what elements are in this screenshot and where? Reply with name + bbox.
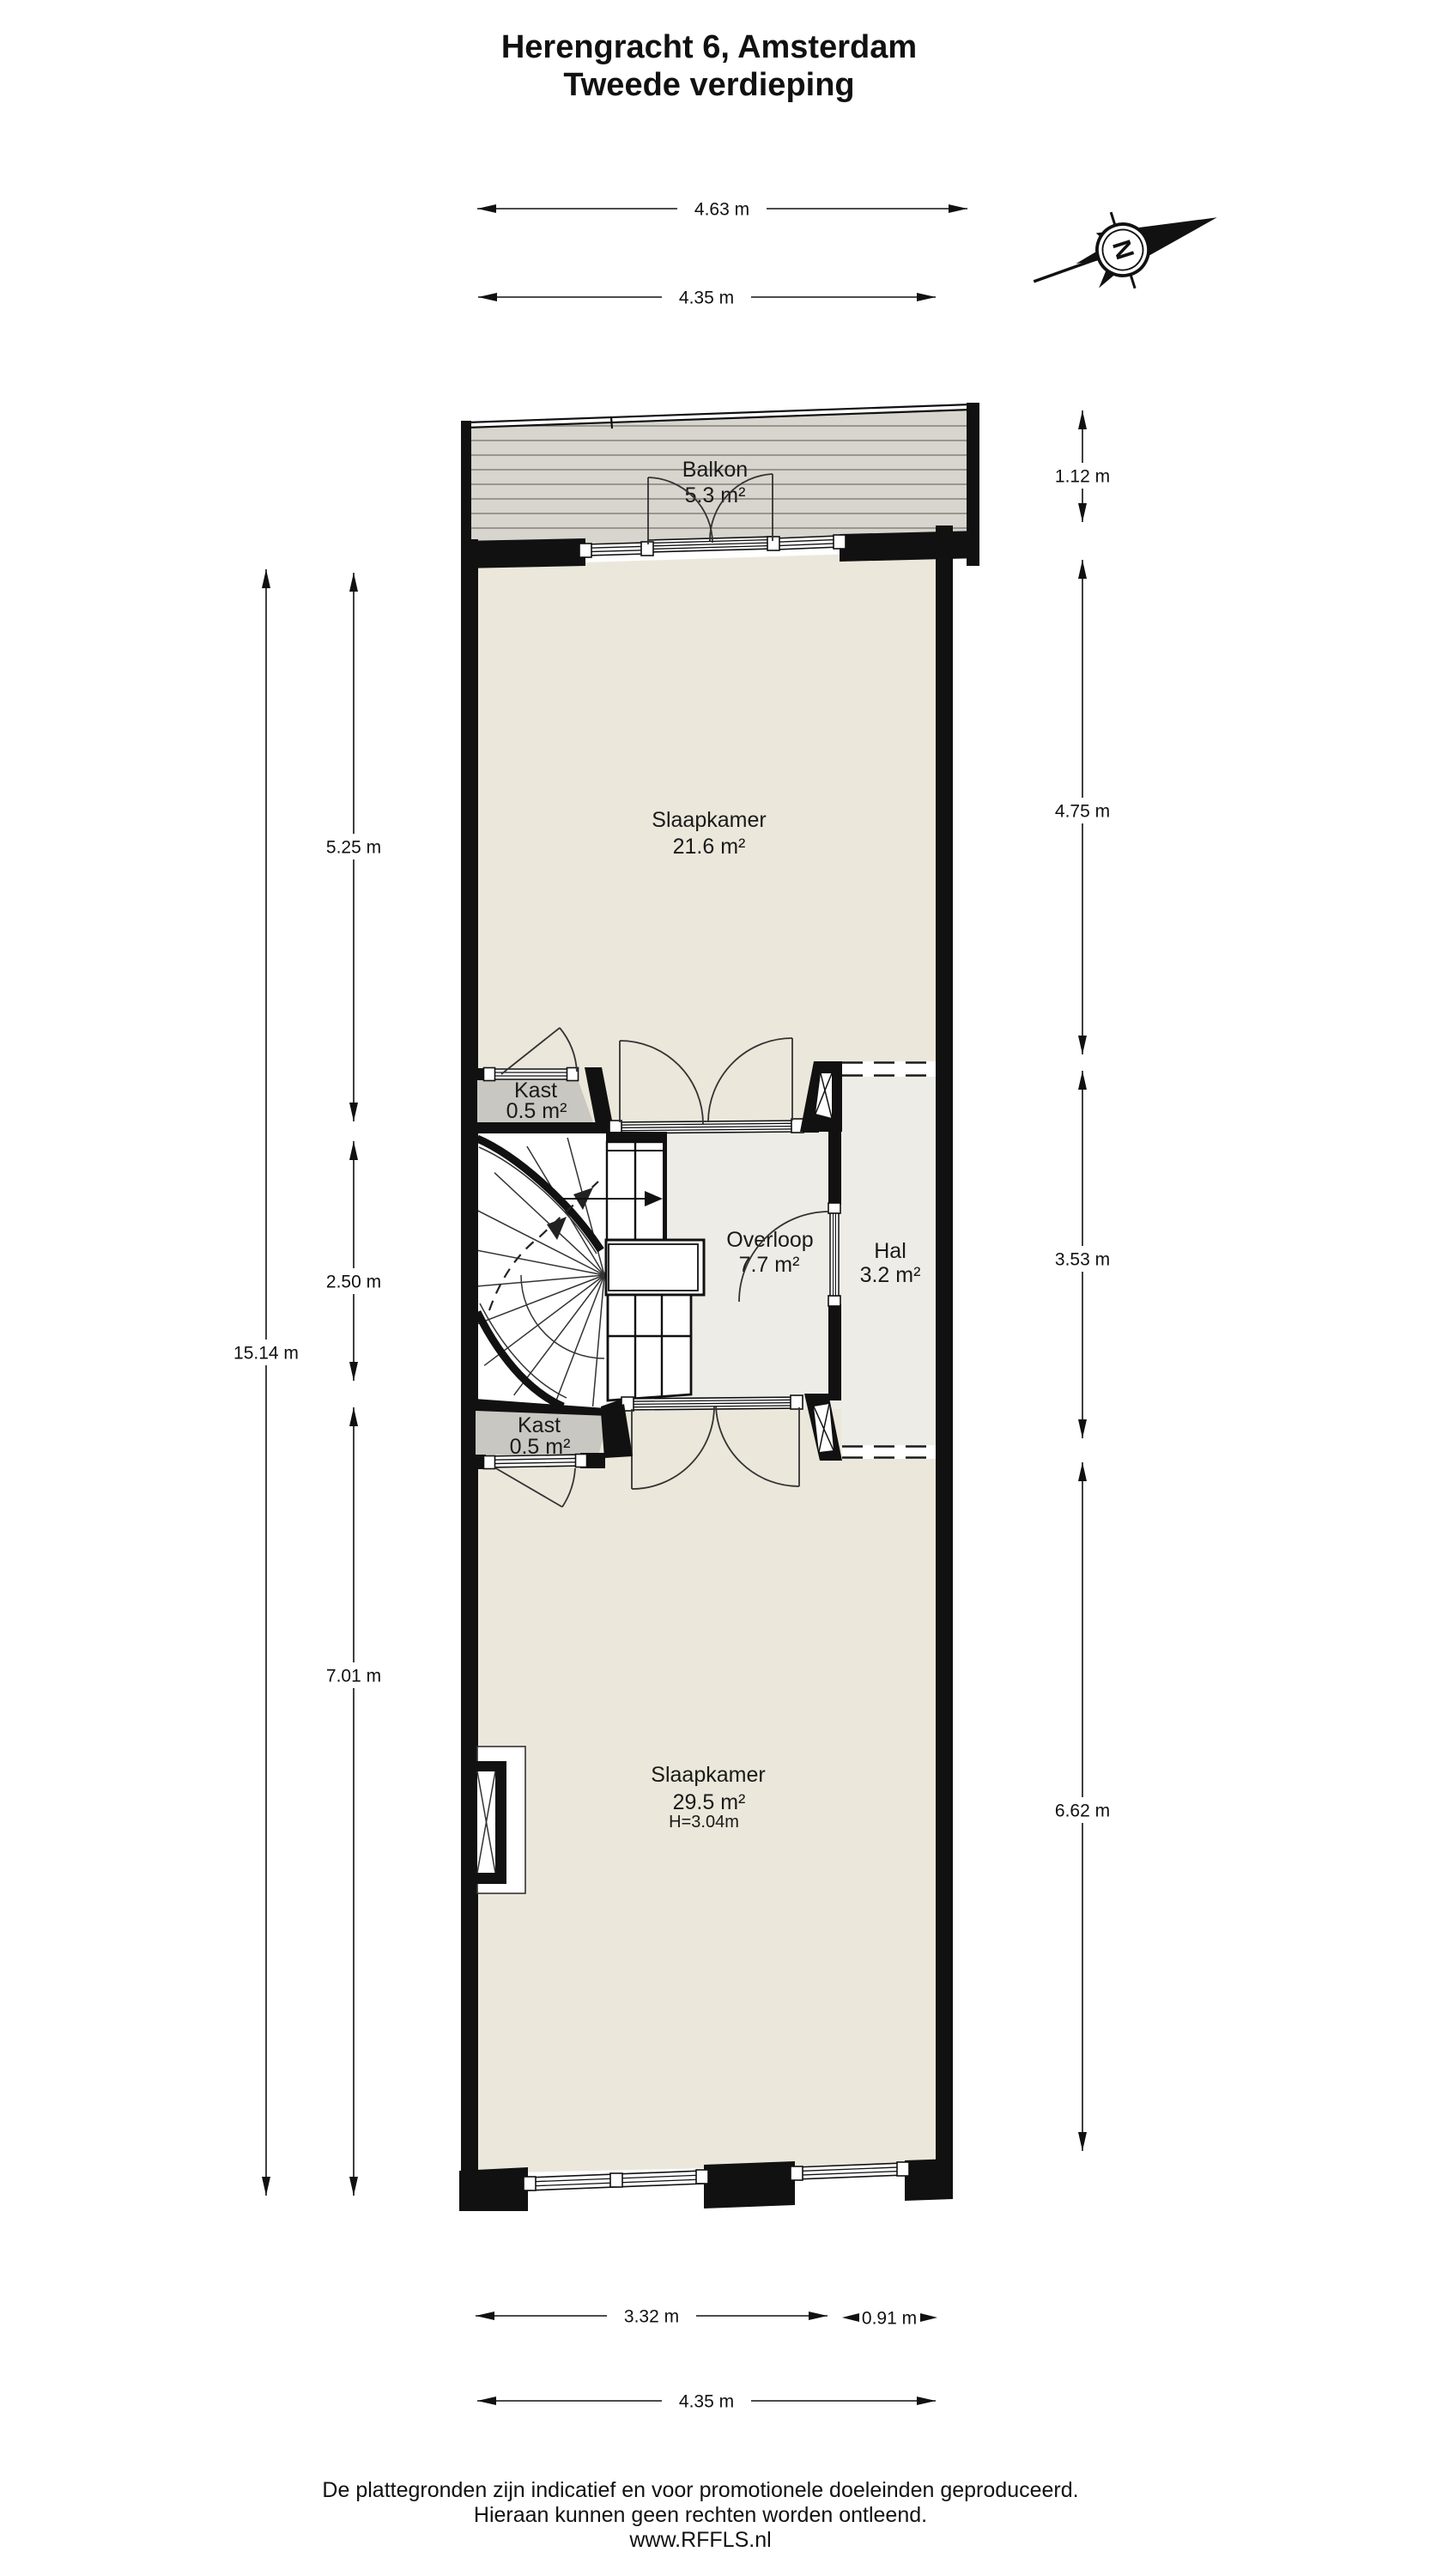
- svg-text:4.35 m: 4.35 m: [679, 289, 734, 308]
- svg-text:7.7 m²: 7.7 m²: [739, 1253, 800, 1277]
- svg-text:Herengracht 6, Amsterdam: Herengracht 6, Amsterdam: [501, 29, 917, 65]
- svg-text:4.35 m: 4.35 m: [679, 2392, 734, 2412]
- svg-text:5.25 m: 5.25 m: [326, 838, 381, 858]
- svg-text:0.5 m²: 0.5 m²: [506, 1099, 567, 1123]
- svg-text:15.14 m: 15.14 m: [233, 1344, 299, 1364]
- svg-text:1.12 m: 1.12 m: [1055, 467, 1110, 487]
- svg-text:4.75 m: 4.75 m: [1055, 802, 1110, 822]
- svg-text:4.63 m: 4.63 m: [694, 200, 749, 220]
- svg-text:De plattegronden zijn indicati: De plattegronden zijn indicatief en voor…: [322, 2478, 1078, 2502]
- svg-text:www.RFFLS.nl: www.RFFLS.nl: [628, 2528, 771, 2552]
- svg-text:H=3.04m: H=3.04m: [669, 1813, 739, 1832]
- svg-text:3.53 m: 3.53 m: [1055, 1250, 1110, 1270]
- svg-text:Slaapkamer: Slaapkamer: [651, 1763, 765, 1787]
- svg-text:Tweede verdieping: Tweede verdieping: [563, 67, 854, 103]
- svg-text:6.62 m: 6.62 m: [1055, 1801, 1110, 1821]
- svg-text:29.5 m²: 29.5 m²: [673, 1790, 746, 1814]
- svg-text:0.91 m: 0.91 m: [862, 2309, 917, 2329]
- svg-text:Hieraan kunnen geen rechten wo: Hieraan kunnen geen rechten worden ontle…: [474, 2503, 927, 2527]
- svg-text:7.01 m: 7.01 m: [326, 1667, 381, 1686]
- svg-text:21.6 m²: 21.6 m²: [673, 835, 746, 859]
- svg-text:Kast: Kast: [518, 1413, 561, 1437]
- svg-text:2.50 m: 2.50 m: [326, 1273, 381, 1292]
- svg-text:3.2 m²: 3.2 m²: [860, 1263, 921, 1287]
- svg-text:Slaapkamer: Slaapkamer: [652, 808, 766, 832]
- svg-text:Balkon: Balkon: [682, 458, 748, 482]
- svg-text:Hal: Hal: [874, 1239, 906, 1263]
- svg-text:Overloop: Overloop: [726, 1228, 813, 1252]
- svg-text:3.32 m: 3.32 m: [624, 2307, 679, 2327]
